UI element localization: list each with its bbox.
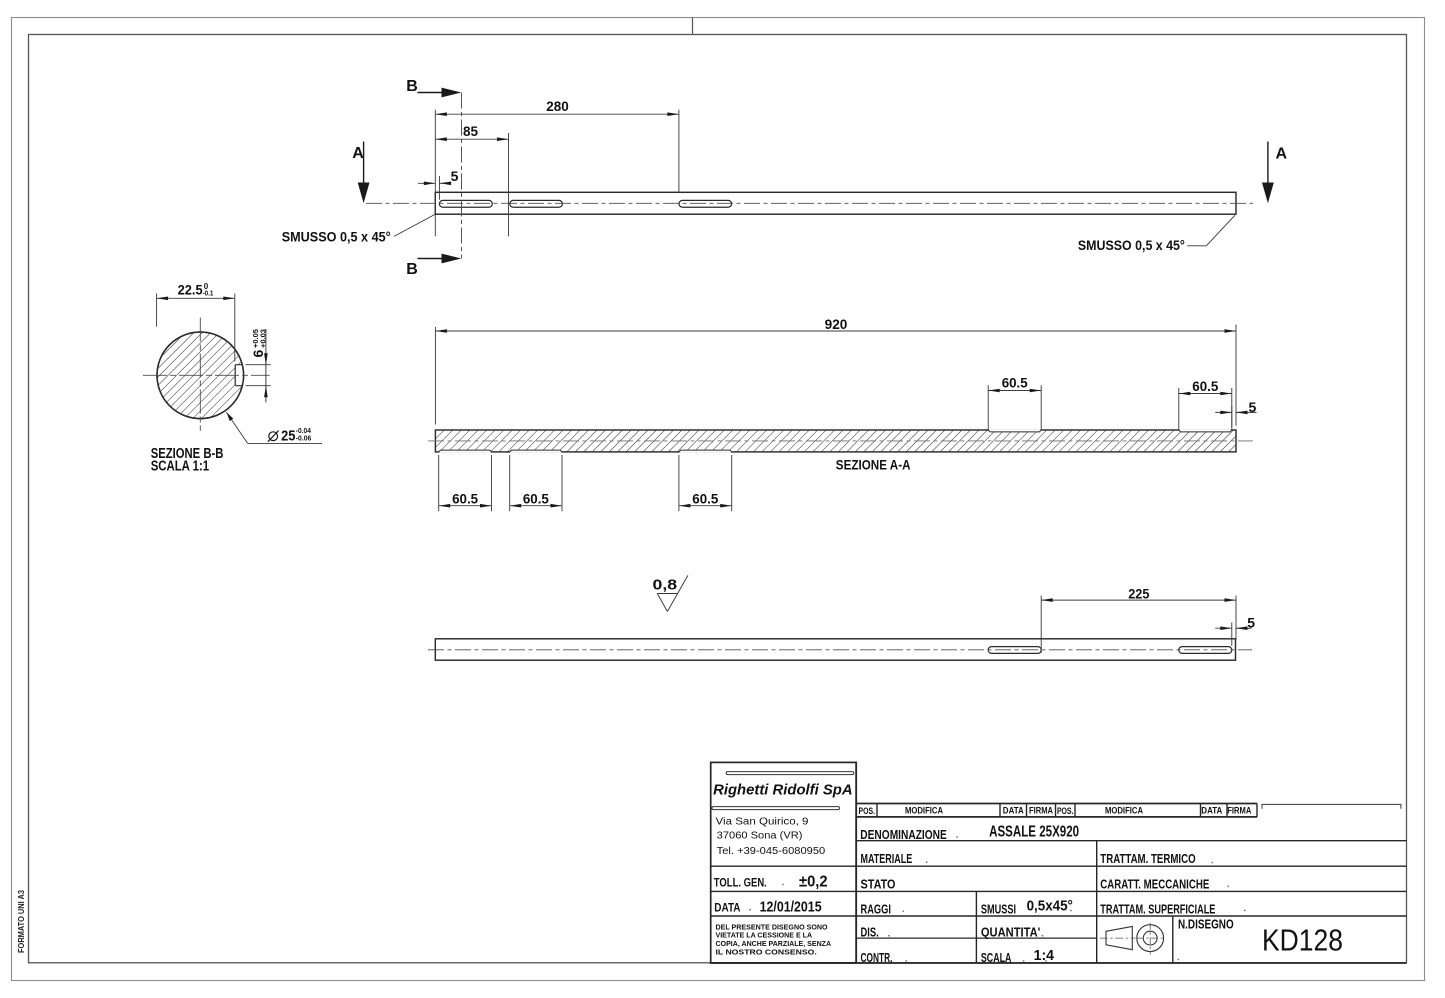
svg-text:SEZIONE A-A: SEZIONE A-A [836,457,911,473]
svg-text:225: 225 [1128,585,1149,601]
svg-text:-0.1: -0.1 [203,288,214,297]
svg-text:CARATT. MECCANICHE: CARATT. MECCANICHE [1100,877,1209,892]
svg-text:DATA: DATA [714,902,740,914]
svg-text:FIRMA: FIRMA [1227,806,1251,817]
svg-text:QUANTITA': QUANTITA' [981,925,1040,940]
svg-text:SCALA 1:1: SCALA 1:1 [151,458,209,474]
svg-text:MODIFICA: MODIFICA [1105,806,1143,817]
svg-text:1:4: 1:4 [1034,948,1054,964]
svg-text:B: B [406,78,418,95]
svg-text:POS.: POS. [859,806,876,817]
svg-text:-0.06: -0.06 [296,433,312,442]
svg-text:6: 6 [250,350,266,358]
svg-text:N.DISEGNO: N.DISEGNO [1178,917,1234,932]
svg-text:25: 25 [281,429,295,445]
svg-text:60.5: 60.5 [1002,376,1028,391]
svg-text:60.5: 60.5 [1192,379,1218,394]
svg-text:POS.: POS. [1057,806,1074,817]
svg-text:SMUSSO 0,5 x 45°: SMUSSO 0,5 x 45° [1078,237,1185,253]
svg-text:CONTR.: CONTR. [861,950,893,965]
svg-text:37060 Sona (VR): 37060 Sona (VR) [717,831,803,842]
svg-text:5: 5 [1247,614,1255,630]
svg-text:TOLL. GEN.: TOLL. GEN. [714,877,767,889]
svg-text:5: 5 [451,168,459,184]
svg-text:±0,2: ±0,2 [799,873,828,890]
svg-text:280: 280 [546,98,569,114]
svg-text:B: B [406,261,418,278]
svg-text:920: 920 [825,316,848,332]
svg-text:DIS.: DIS. [861,925,879,940]
svg-text:ASSALE 25X920: ASSALE 25X920 [989,823,1079,840]
svg-text:0,8: 0,8 [653,578,678,594]
svg-text:60.5: 60.5 [523,491,549,506]
svg-text:85: 85 [463,123,478,139]
svg-text:5: 5 [1249,399,1257,415]
svg-text:IL NOSTRO CONSENSO.: IL NOSTRO CONSENSO. [716,947,817,956]
svg-text:+0.03: +0.03 [258,329,267,348]
svg-text:A: A [1276,146,1288,163]
svg-text:MATERIALE: MATERIALE [861,851,913,866]
svg-text:FIRMA: FIRMA [1029,806,1053,817]
svg-text:SCALA: SCALA [981,950,1012,965]
svg-text:DATA: DATA [1003,806,1024,817]
svg-text:12/01/2015: 12/01/2015 [760,899,822,915]
svg-text:SMUSSO 0,5 x 45°: SMUSSO 0,5 x 45° [282,229,391,245]
svg-text:Via San Quirico, 9: Via San Quirico, 9 [716,816,809,827]
svg-text:RAGGI: RAGGI [861,901,891,916]
svg-text:SMUSSI: SMUSSI [981,901,1016,916]
svg-text:DENOMINAZIONE: DENOMINAZIONE [860,827,947,842]
svg-text:MODIFICA: MODIFICA [905,806,943,817]
svg-text:TRATTAM. SUPERFICIALE: TRATTAM. SUPERFICIALE [1100,901,1215,916]
svg-text:Righetti Ridolfi SpA: Righetti Ridolfi SpA [713,781,853,798]
svg-text:60.5: 60.5 [452,491,478,506]
svg-text:A: A [352,145,364,162]
svg-text:KD128: KD128 [1262,923,1343,958]
svg-text:DATA: DATA [1201,806,1222,817]
svg-text:60.5: 60.5 [692,491,718,506]
svg-text:Tel. +39-045-6080950: Tel. +39-045-6080950 [717,846,826,857]
svg-text:FORMATO UNI A3: FORMATO UNI A3 [17,889,26,953]
svg-text:STATO: STATO [861,877,896,892]
svg-text:0,5x45°: 0,5x45° [1027,899,1073,915]
svg-text:22.5: 22.5 [178,282,203,297]
svg-text:TRATTAM. TERMICO: TRATTAM. TERMICO [1100,851,1195,866]
